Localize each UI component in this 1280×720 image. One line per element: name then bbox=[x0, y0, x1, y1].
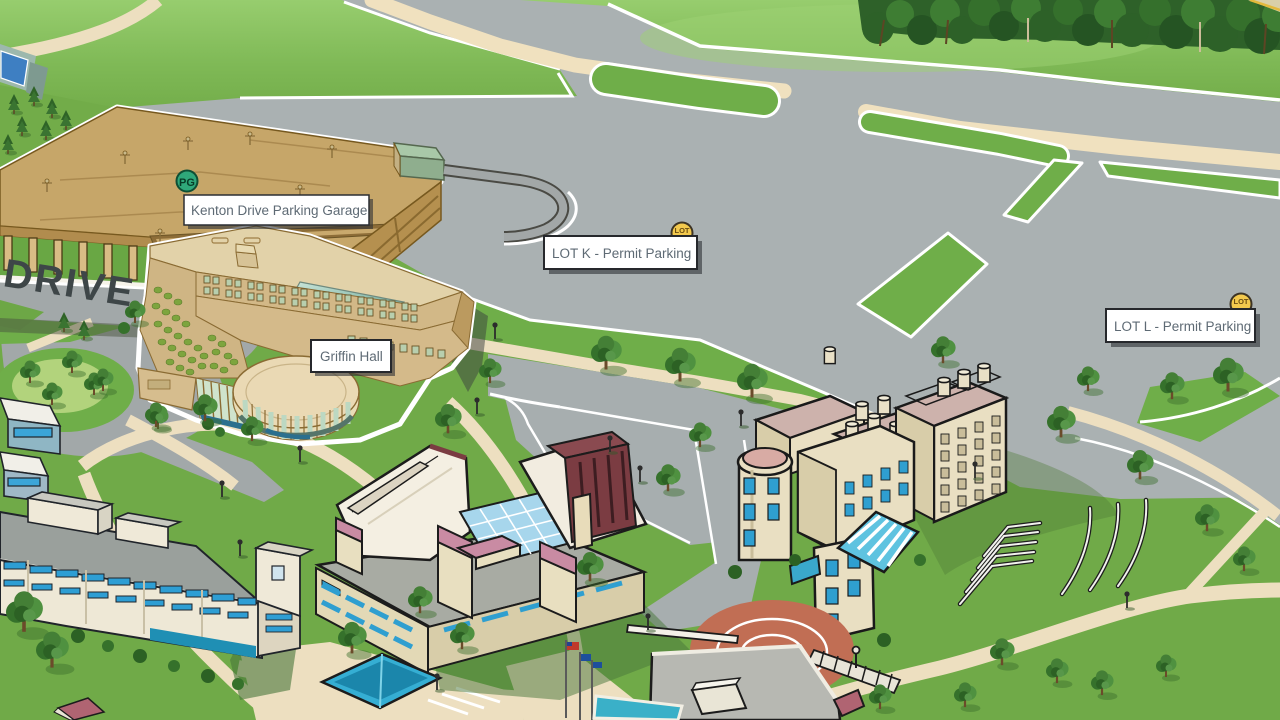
svg-text:Griffin Hall: Griffin Hall bbox=[320, 349, 383, 364]
svg-text:LOT: LOT bbox=[1234, 297, 1249, 306]
svg-text:LOT K - Permit Parking: LOT K - Permit Parking bbox=[552, 246, 691, 261]
svg-text:LOT L - Permit Parking: LOT L - Permit Parking bbox=[1114, 319, 1251, 334]
svg-text:PG: PG bbox=[179, 177, 195, 189]
svg-text:LOT: LOT bbox=[675, 226, 690, 235]
svg-text:Kenton Drive Parking Garage: Kenton Drive Parking Garage bbox=[191, 203, 367, 218]
